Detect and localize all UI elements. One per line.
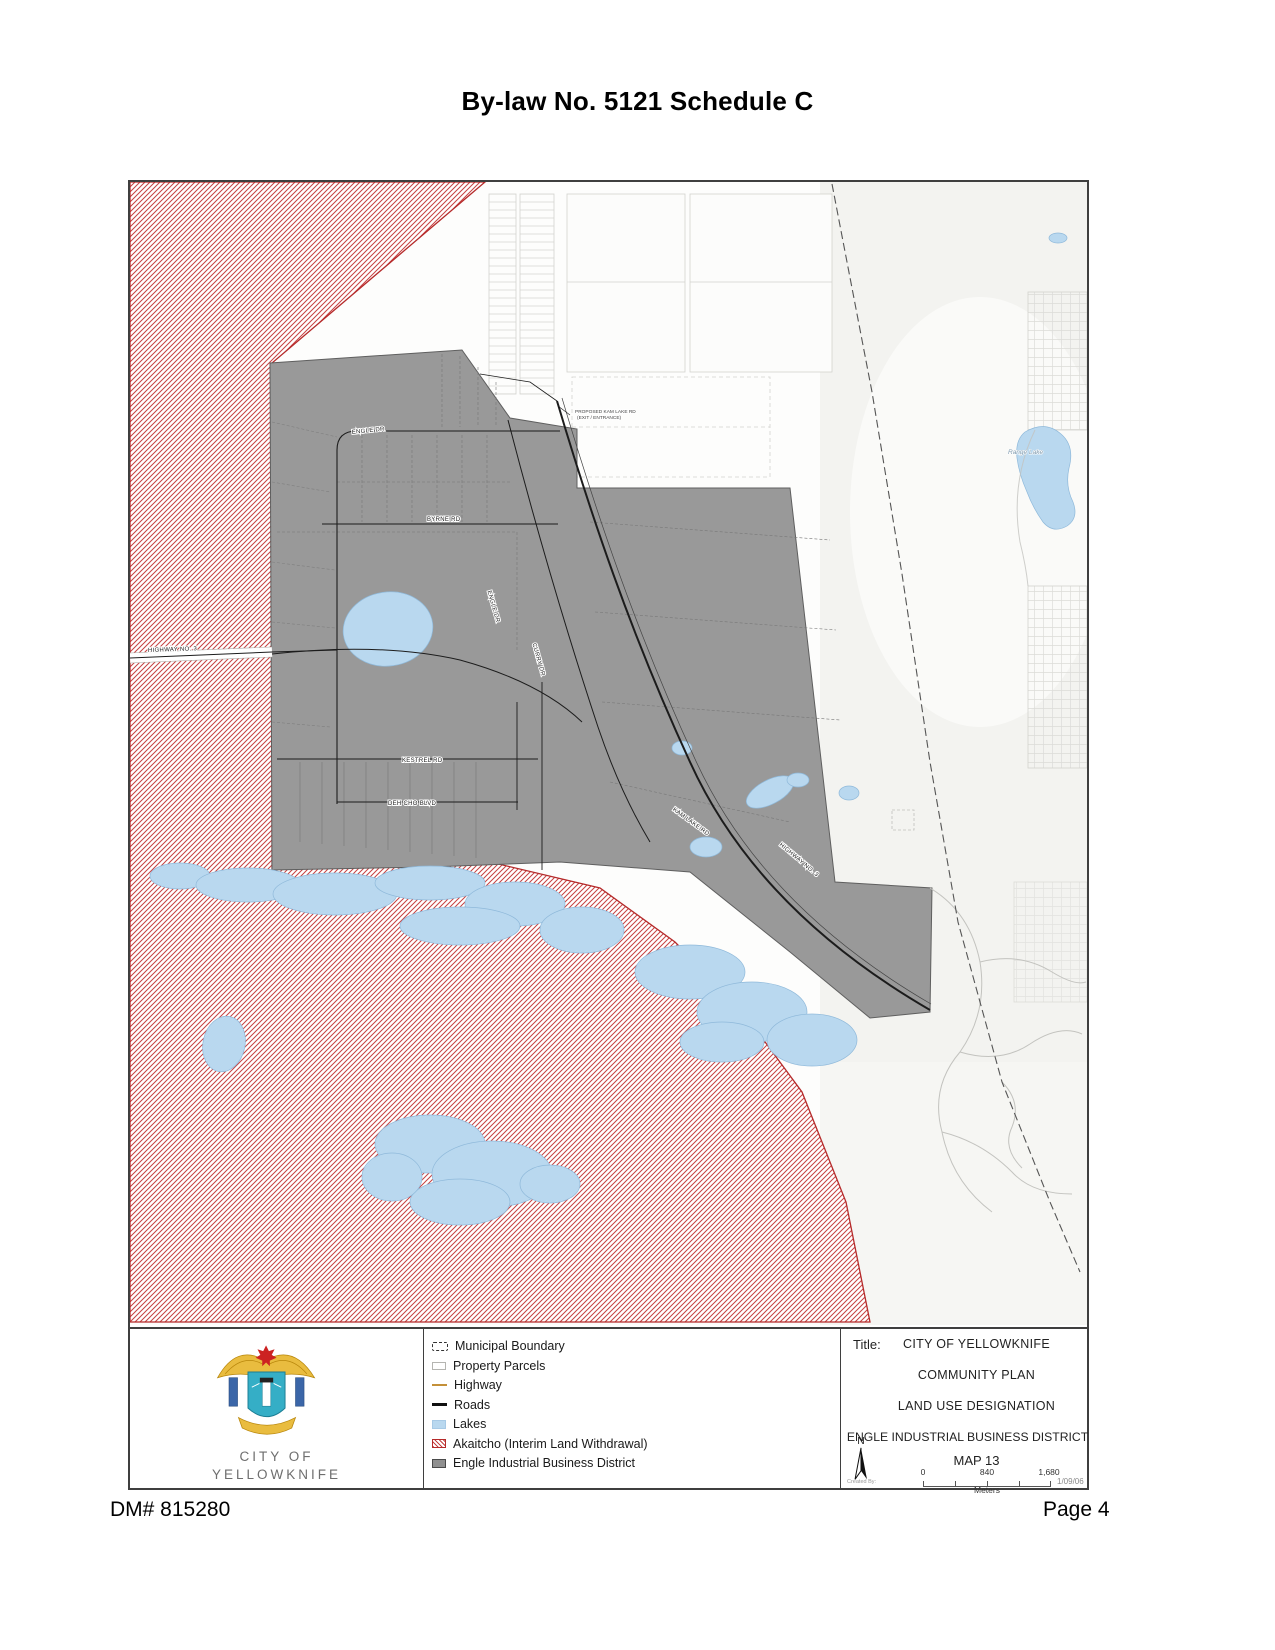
scale-tick-1680: 1,680 [1038, 1467, 1059, 1477]
lake-label-range-lake: Range Lake [1008, 449, 1043, 456]
legend-label: Lakes [453, 1417, 486, 1431]
municipal-boundary-symbol [432, 1342, 448, 1351]
page-number: Page 4 [1043, 1498, 1110, 1522]
legend-label: Akaitcho (Interim Land Withdrawal) [453, 1437, 648, 1451]
map-date: 1/09/06 [1057, 1477, 1084, 1486]
callout-label-line1: PROPOSED KAM LAKE RD [575, 409, 636, 415]
document-number: DM# 815280 [110, 1498, 230, 1522]
title-line-designation: LAND USE DESIGNATION [861, 1399, 1092, 1413]
legend-label: Municipal Boundary [455, 1339, 565, 1353]
scale-tick-840: 840 [980, 1467, 994, 1477]
logo-section: CITY OF YELLOWKNIFE [130, 1329, 423, 1488]
map-canvas: ENGLE DR BYRNE RD ENGLE DR CURRY DR HIGH… [130, 182, 1087, 1325]
legend-section: Municipal Boundary Property Parcels High… [423, 1329, 840, 1488]
legend-label: Property Parcels [453, 1359, 545, 1373]
logo-text-yellowknife: YELLOWKNIFE [130, 1467, 423, 1482]
scale-tick-0: 0 [921, 1467, 926, 1477]
akaitcho-hatch-symbol [432, 1439, 446, 1448]
logo-text-city-of: CITY OF [130, 1449, 423, 1464]
title-line-plan: COMMUNITY PLAN [861, 1368, 1092, 1382]
map-info-panel: CITY OF YELLOWKNIFE Municipal Boundary P… [128, 1327, 1089, 1490]
engle-district-symbol [432, 1459, 446, 1468]
north-label: N [849, 1437, 873, 1447]
title-line-city: CITY OF YELLOWKNIFE [861, 1337, 1092, 1351]
legend-item-akaitcho: Akaitcho (Interim Land Withdrawal) [432, 1437, 648, 1451]
road-label-kestrel-rd: KESTREL RD [402, 758, 443, 764]
highway-symbol [432, 1384, 447, 1386]
legend-list: Municipal Boundary Property Parcels High… [432, 1339, 648, 1470]
lakes-symbol [432, 1420, 446, 1429]
north-arrow-icon [852, 1447, 870, 1481]
legend-label: Engle Industrial Business District [453, 1456, 635, 1470]
legend-item-property-parcels: Property Parcels [432, 1359, 648, 1373]
legend-label: Highway [454, 1378, 502, 1392]
road-label-byrne-rd: BYRNE RD [427, 517, 461, 523]
legend-item-municipal-boundary: Municipal Boundary [432, 1339, 648, 1353]
callout-label-line2: (EXIT / ENTRANCE) [577, 415, 622, 421]
legend-label: Roads [454, 1398, 490, 1412]
title-line-district: ENGLE INDUSTRIAL BUSINESS DISTRICT [843, 1430, 1092, 1444]
bylaw-schedule-page: By-law No. 5121 Schedule C [0, 0, 1275, 1650]
roads-symbol [432, 1403, 447, 1405]
title-block: Title: CITY OF YELLOWKNIFE COMMUNITY PLA… [840, 1329, 1091, 1488]
road-label-deh-cho-blvd: DEH CHO BLVD [388, 801, 437, 807]
scale-unit: Meters [923, 1485, 1051, 1495]
legend-item-engle-district: Engle Industrial Business District [432, 1456, 648, 1470]
map-number: MAP 13 [861, 1453, 1092, 1468]
legend-item-lakes: Lakes [432, 1417, 648, 1431]
property-parcels-symbol [432, 1362, 446, 1370]
created-by-note: Created By: [847, 1479, 876, 1485]
page-title: By-law No. 5121 Schedule C [0, 86, 1275, 117]
city-of-yellowknife-crest-icon [207, 1334, 327, 1448]
legend-item-roads: Roads [432, 1398, 648, 1412]
legend-item-highway: Highway [432, 1378, 648, 1392]
